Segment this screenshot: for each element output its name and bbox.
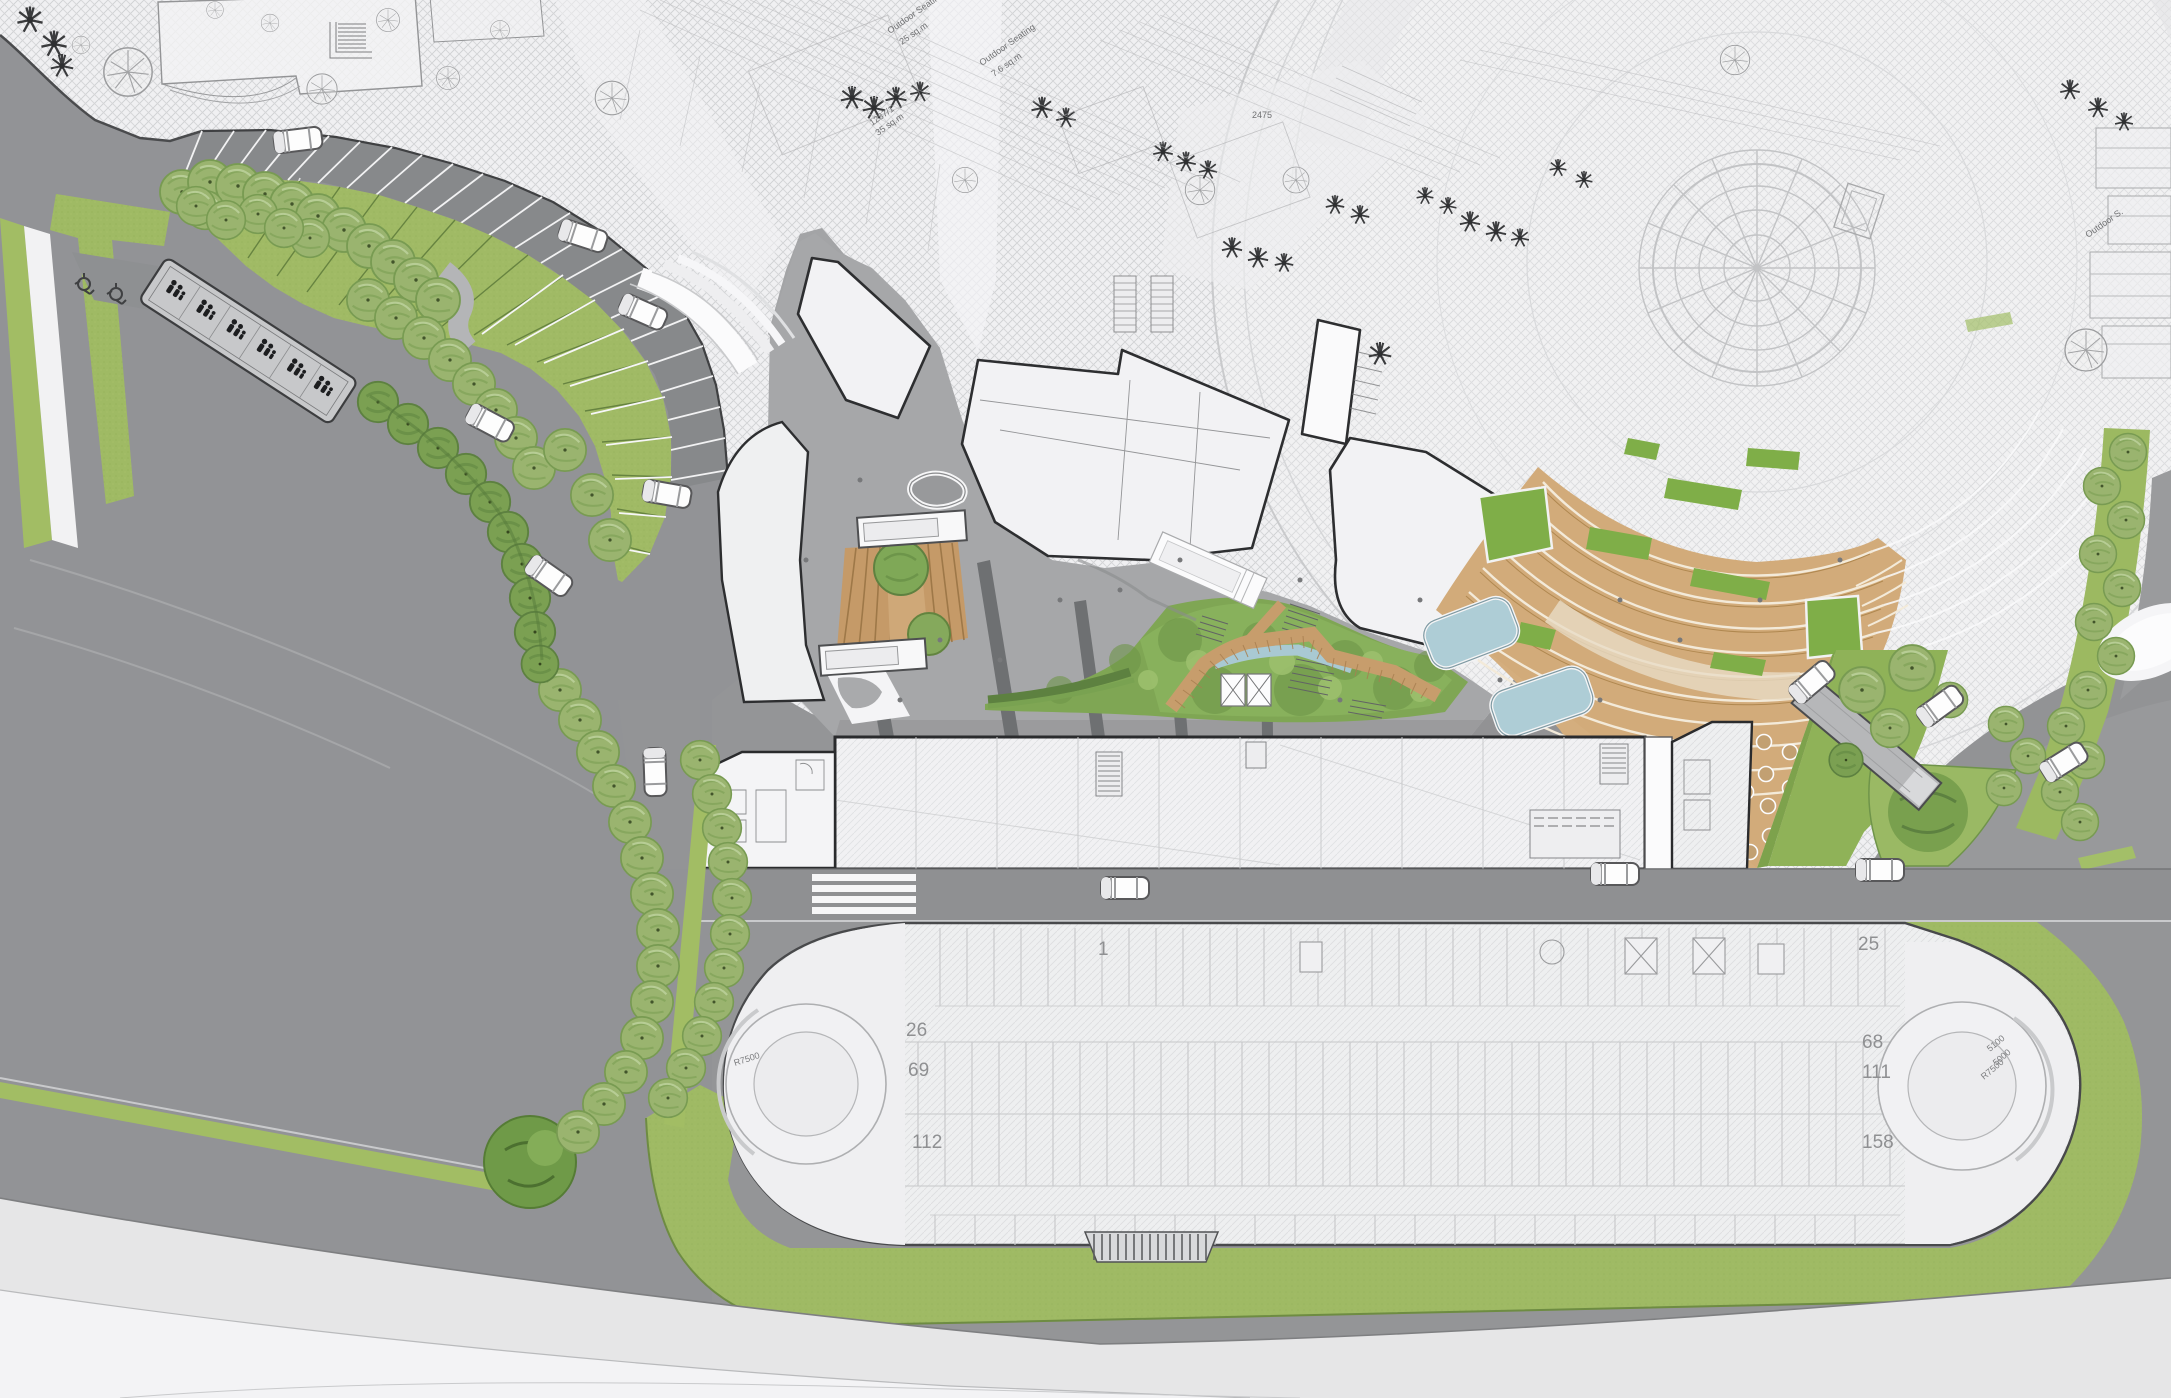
svg-text:68: 68 <box>1862 1032 1883 1053</box>
svg-text:158: 158 <box>1862 1132 1894 1153</box>
svg-text:26: 26 <box>906 1020 927 1041</box>
svg-text:25: 25 <box>1858 934 1879 955</box>
svg-text:1: 1 <box>1098 939 1109 960</box>
svg-text:2475: 2475 <box>1252 110 1272 120</box>
svg-text:111: 111 <box>1862 1062 1891 1083</box>
svg-text:112: 112 <box>912 1132 942 1153</box>
svg-text:69: 69 <box>908 1060 929 1081</box>
